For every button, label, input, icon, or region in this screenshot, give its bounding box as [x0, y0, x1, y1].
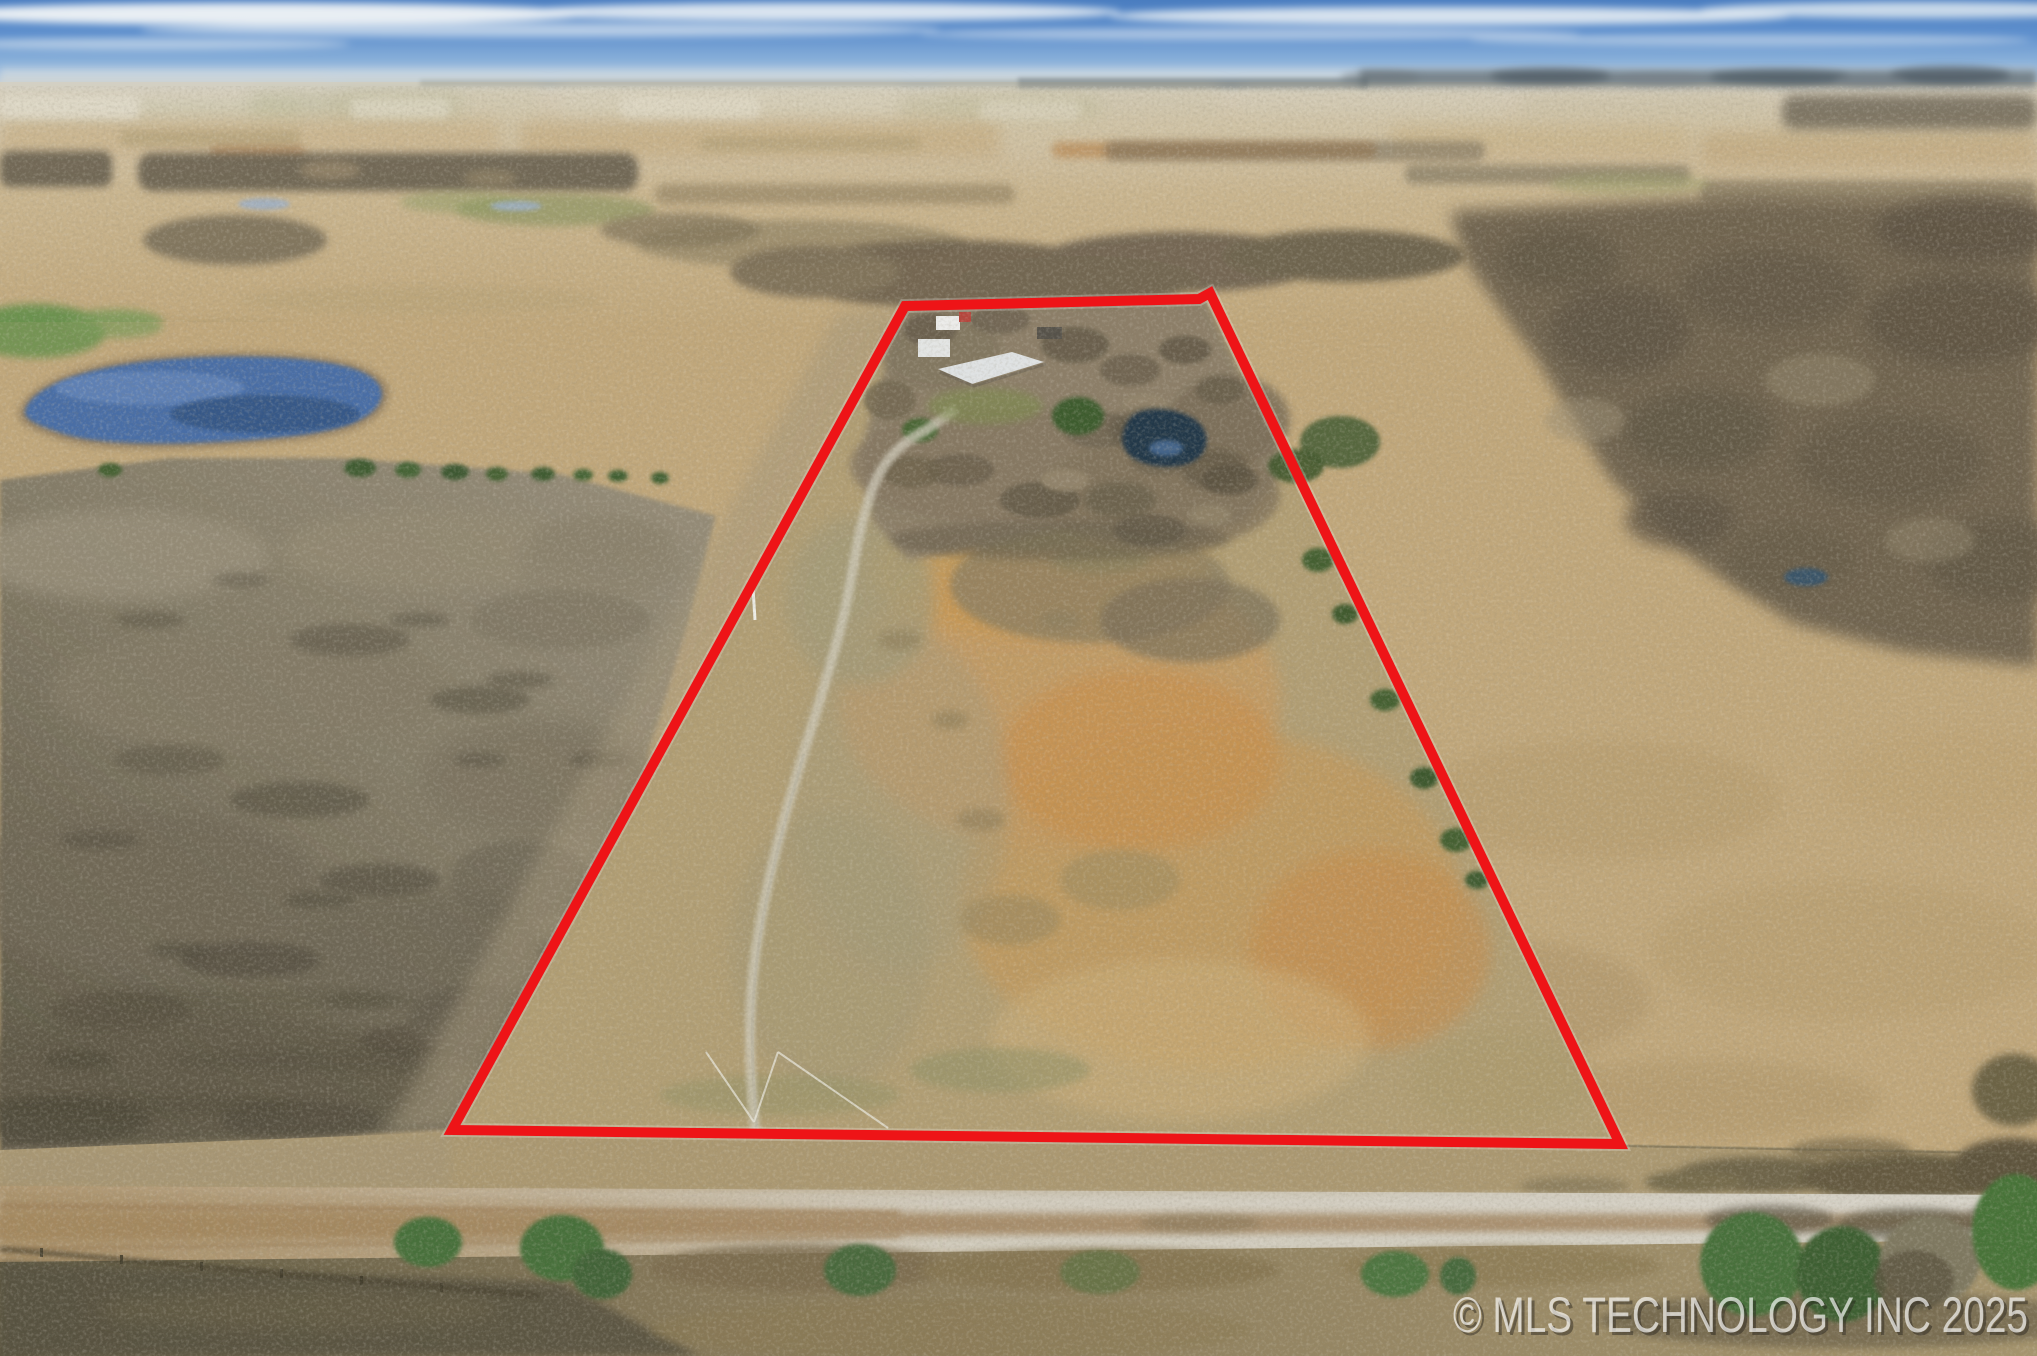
svg-text:© MLS TECHNOLOGY INC 2025: © MLS TECHNOLOGY INC 2025: [1453, 1287, 2028, 1343]
